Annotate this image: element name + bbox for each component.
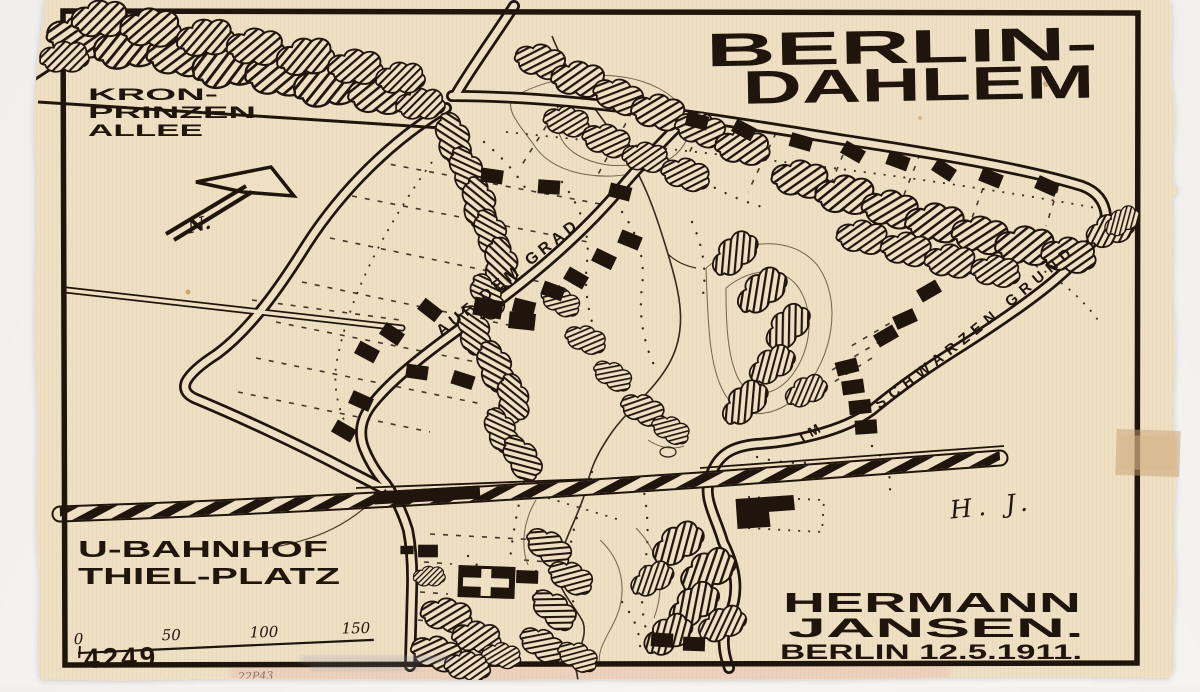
credit-block: HERMANN JANSEN. BERLIN 12.5.1911. — [780, 587, 1084, 664]
house-icon — [508, 311, 536, 330]
station-platform — [374, 492, 480, 498]
pencil-note: 22P43 — [237, 669, 274, 683]
plan-number: 4249 — [84, 641, 159, 674]
house-icon — [848, 399, 871, 415]
map-artwork: N. BERLIN- DAHLEM KRON- PRINZEN ALLEE AU… — [0, 0, 1200, 687]
page-title: BERLIN- DAHLEM — [705, 17, 1099, 115]
ubahn-line2: THIEL-PLATZ — [78, 563, 340, 589]
tape-patch-inner — [1119, 435, 1176, 471]
house-icon — [855, 419, 878, 435]
scale-tick-150: 150 — [341, 619, 370, 638]
house-icon — [683, 637, 705, 652]
ubahn-line1: U-BAHNHOF — [78, 536, 328, 562]
scale-tick-0: 0 — [74, 630, 84, 648]
kron-line2: PRINZEN — [88, 103, 256, 122]
u-bahnhof-label: U-BAHNHOF THIEL-PLATZ — [78, 536, 340, 589]
house-icon — [400, 546, 413, 554]
scale-tick-100: 100 — [249, 623, 278, 642]
house-icon — [651, 632, 674, 648]
paper-speck — [918, 116, 922, 120]
scale-tick-50: 50 — [162, 626, 182, 644]
credit-date: BERLIN 12.5.1911. — [780, 640, 1082, 664]
kron-line3: ALLEE — [88, 121, 203, 140]
house-icon — [538, 179, 561, 195]
house-icon — [418, 545, 438, 558]
credit-name2: JANSEN. — [788, 613, 1084, 643]
title-line2: DAHLEM — [742, 55, 1095, 114]
paper-speck — [186, 290, 191, 295]
kron-line1: KRON- — [88, 85, 218, 104]
